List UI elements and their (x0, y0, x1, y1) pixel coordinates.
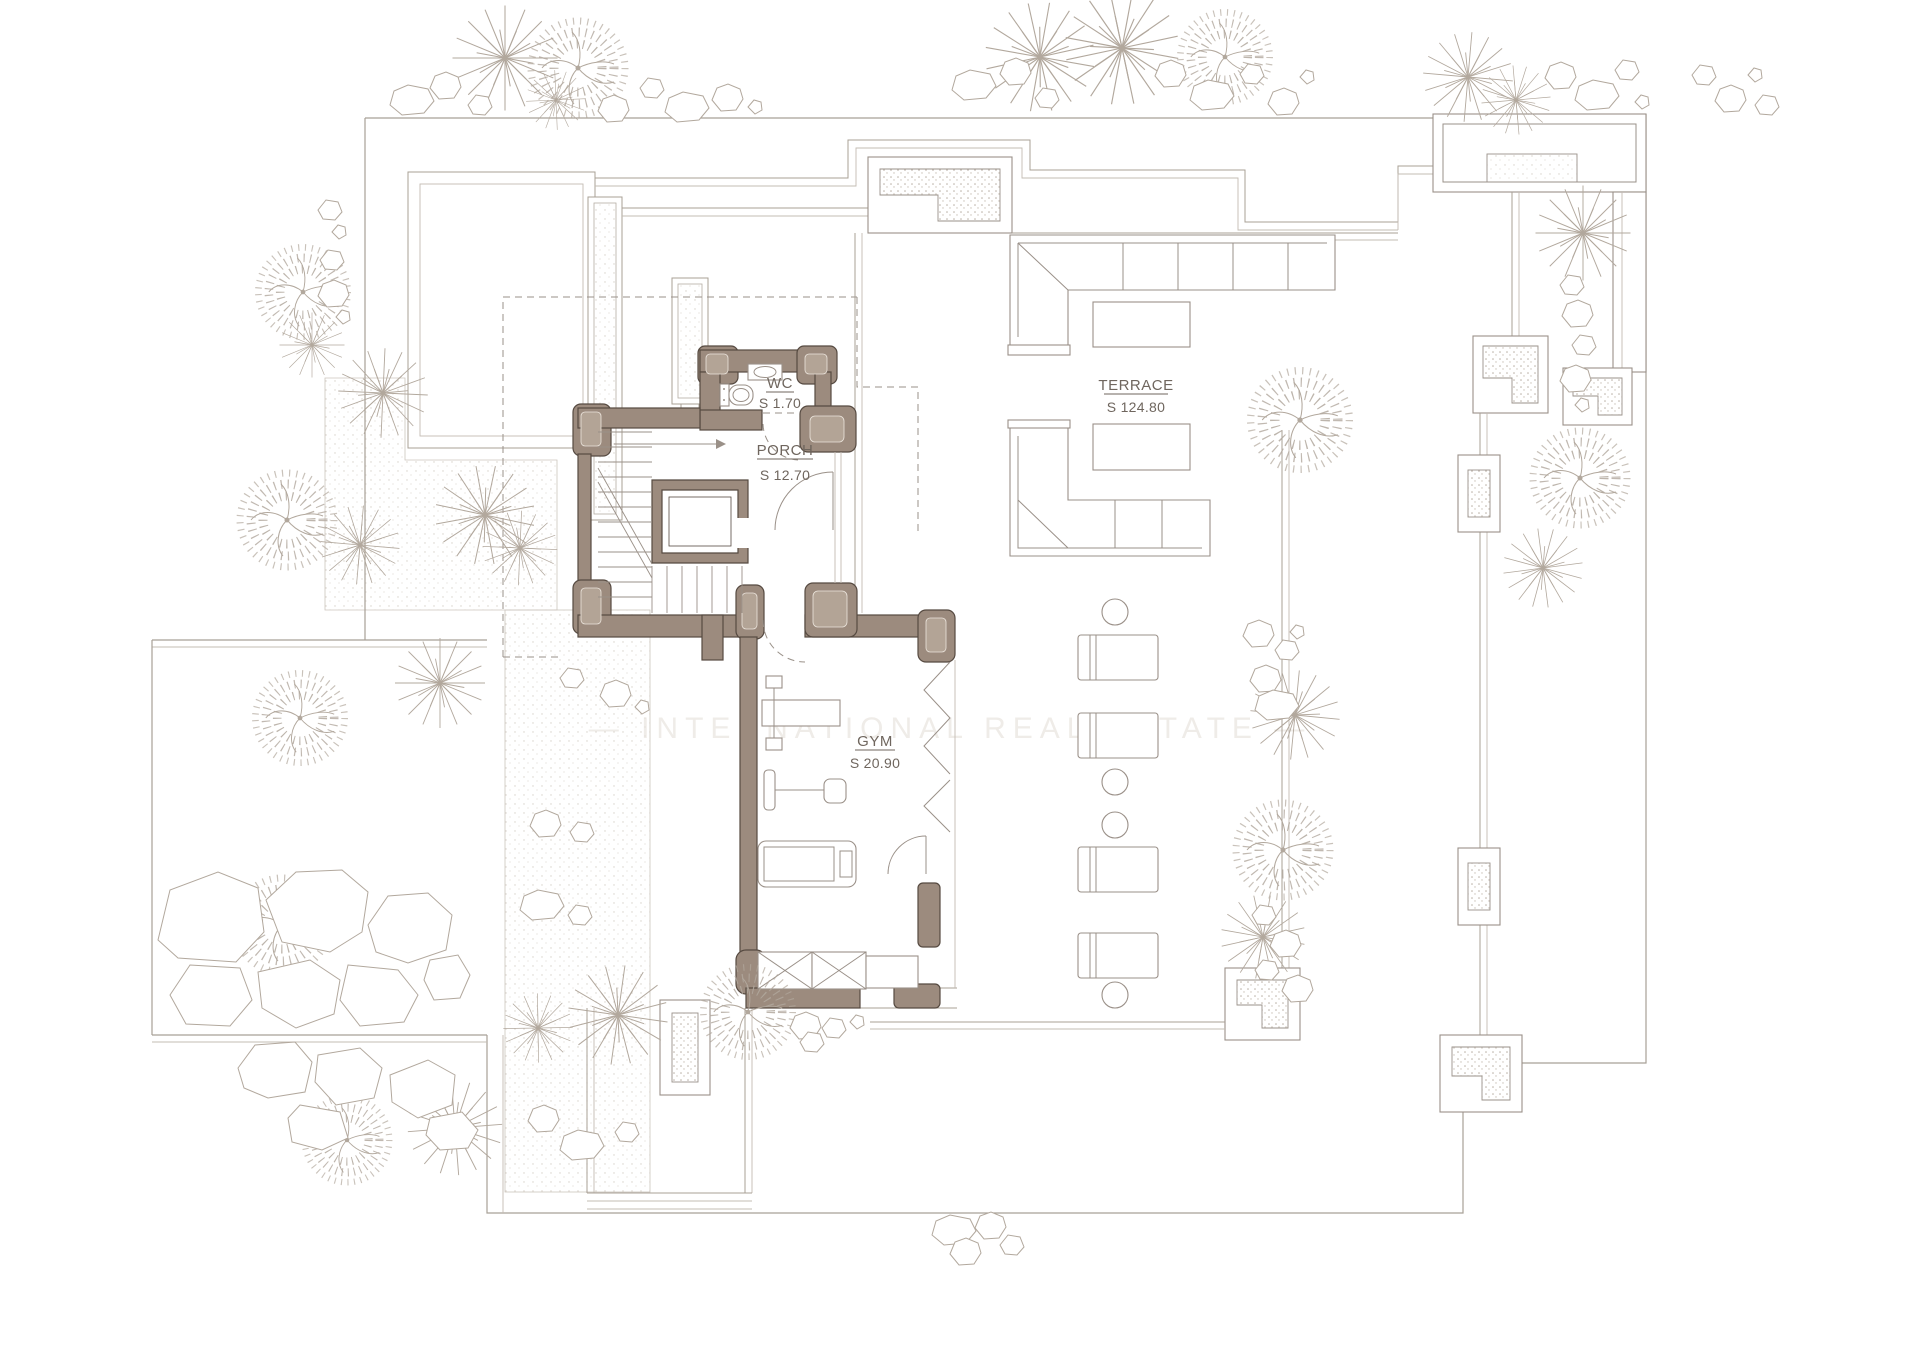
stair-direction-arrow (716, 439, 726, 449)
coffee-table-mid (1093, 424, 1190, 470)
wc-area: S 1.70 (759, 395, 801, 411)
terrace-label: TERRACE (1098, 377, 1173, 394)
gym-door-arc (763, 620, 805, 662)
elevator-shaft (652, 480, 748, 563)
tree-icon (1236, 803, 1330, 897)
porch-label: PORCH (757, 442, 814, 459)
side-table (1102, 812, 1128, 838)
tree-icon (1251, 371, 1350, 470)
wc-label: WC (767, 375, 793, 392)
terrace-area: S 124.80 (1107, 399, 1165, 415)
palm-icon (395, 638, 485, 728)
rocks-layer (158, 58, 1779, 1265)
gym-area: S 20.90 (850, 755, 900, 771)
tree-icon (255, 673, 344, 762)
gym-label: GYM (857, 733, 893, 750)
side-table (1102, 769, 1128, 795)
side-table (1102, 599, 1128, 625)
floor-plan-svg: WC S 1.70 PORCH S 12.70 GYM S 20.90 TERR… (0, 0, 1920, 1357)
tree-icon (1533, 431, 1627, 525)
gym-mats (758, 952, 918, 989)
tree-icon (240, 473, 334, 567)
palm-icon (1494, 519, 1592, 617)
palm-icon (280, 313, 345, 378)
sun-loungers (1078, 599, 1158, 1008)
terrace-furniture (1008, 235, 1335, 1008)
palm-icon (1419, 28, 1517, 126)
palm-icon (1234, 654, 1356, 776)
side-table (1102, 982, 1128, 1008)
gym-bench-press (762, 676, 840, 750)
coffee-table-top (1093, 302, 1190, 347)
gym-machine (764, 770, 846, 810)
lot-boundary (152, 114, 1646, 1213)
gym-treadmill (758, 841, 856, 887)
floor-plan-page: { "watermark": { "text": "— INTERNATIONA… (0, 0, 1920, 1357)
palm-icon (1536, 186, 1631, 281)
wc-toilet (720, 384, 753, 406)
porch-area: S 12.70 (760, 467, 810, 483)
